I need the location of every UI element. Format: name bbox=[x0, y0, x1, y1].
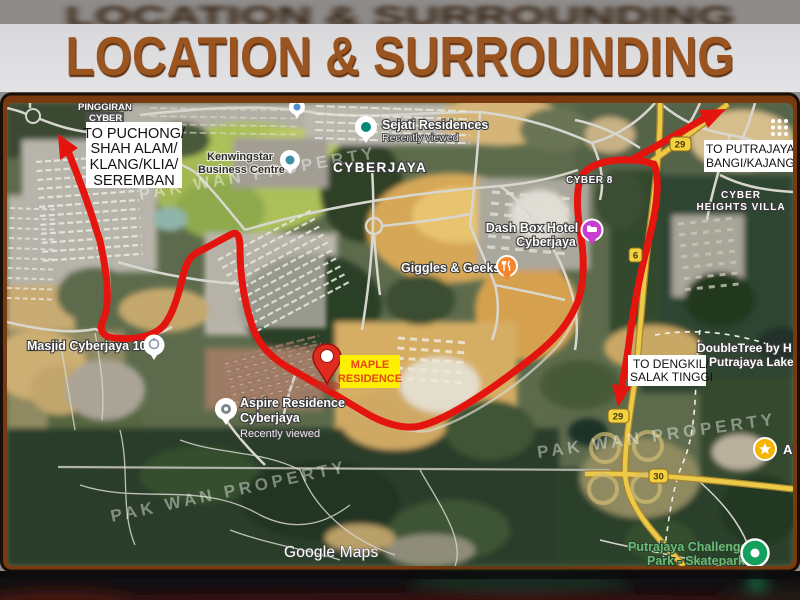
svg-text:HEIGHTS VILLA: HEIGHTS VILLA bbox=[696, 202, 785, 213]
svg-text:Sejati Residences: Sejati Residences bbox=[382, 118, 488, 132]
svg-text:Cyberjaya: Cyberjaya bbox=[516, 235, 577, 249]
svg-text:Masjid Cyberjaya 10: Masjid Cyberjaya 10 bbox=[27, 339, 147, 353]
svg-text:SHAH ALAM/: SHAH ALAM/ bbox=[90, 141, 178, 157]
svg-text:CYBERJAYA: CYBERJAYA bbox=[333, 160, 427, 175]
svg-text:RESIDENCE: RESIDENCE bbox=[338, 373, 402, 385]
svg-text:29: 29 bbox=[613, 412, 624, 423]
svg-text:29: 29 bbox=[675, 140, 686, 151]
svg-text:Google Maps: Google Maps bbox=[284, 544, 378, 561]
svg-text:Aspire Residence: Aspire Residence bbox=[240, 396, 345, 410]
svg-text:TO PUTRAJAYA/: TO PUTRAJAYA/ bbox=[706, 142, 799, 156]
svg-text:Recently viewed: Recently viewed bbox=[382, 132, 459, 144]
svg-text:Business Centre: Business Centre bbox=[198, 164, 285, 176]
svg-text:Cyberjaya: Cyberjaya bbox=[240, 411, 301, 425]
svg-text:PINGGIRAN: PINGGIRAN bbox=[78, 102, 132, 113]
svg-text:CYBER 8: CYBER 8 bbox=[566, 175, 613, 186]
svg-text:DoubleTree by H: DoubleTree by H bbox=[697, 341, 792, 355]
svg-text:SALAK TINGGI: SALAK TINGGI bbox=[630, 370, 713, 384]
svg-text:Recently viewed: Recently viewed bbox=[240, 428, 320, 440]
svg-text:KLANG/KLIA/: KLANG/KLIA/ bbox=[90, 157, 180, 173]
svg-text:MAPLE: MAPLE bbox=[351, 359, 390, 371]
svg-text:Kenwingstar: Kenwingstar bbox=[207, 151, 274, 163]
svg-text:TO DENGKIL/: TO DENGKIL/ bbox=[633, 357, 709, 371]
svg-text:TO PUCHONG/: TO PUCHONG/ bbox=[83, 126, 186, 142]
svg-text:Park - Skatepark: Park - Skatepark bbox=[647, 554, 745, 568]
svg-text:Putrajaya Lake: Putrajaya Lake bbox=[709, 355, 794, 369]
svg-text:CYBER: CYBER bbox=[721, 190, 761, 201]
svg-text:30: 30 bbox=[653, 472, 664, 483]
svg-text:BANGI/KAJANG: BANGI/KAJANG bbox=[706, 156, 795, 170]
svg-text:Putrajaya Challenge: Putrajaya Challenge bbox=[628, 540, 748, 554]
svg-text:Dash Box Hotel: Dash Box Hotel bbox=[486, 221, 578, 235]
svg-text:SEREMBAN: SEREMBAN bbox=[93, 173, 174, 189]
svg-text:Giggles & Geeks: Giggles & Geeks bbox=[401, 261, 500, 275]
svg-text:6: 6 bbox=[633, 251, 638, 262]
